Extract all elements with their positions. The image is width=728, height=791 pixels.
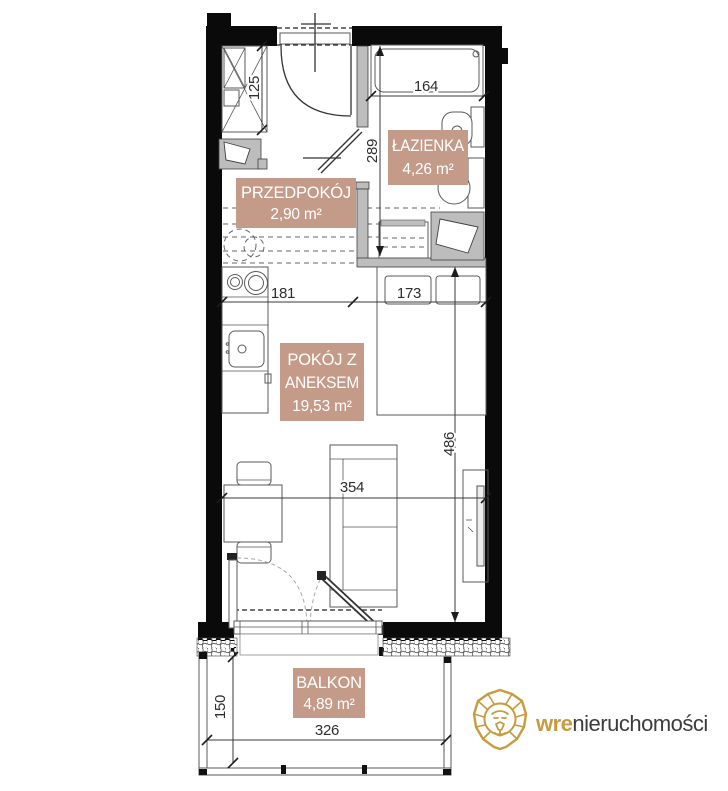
room-name-living-1: POKÓJ Z: [287, 350, 356, 369]
room-name-bathroom: ŁAZIENKA: [392, 137, 464, 155]
floor-plan-page: 181 173 354 486 289 164 125 150: [0, 0, 728, 791]
dimension-balcony-depth: 150: [212, 652, 238, 768]
room-name-living-2: ANEKSEM: [285, 374, 359, 392]
dimension-label-balcony-width: 326: [315, 722, 339, 739]
room-name-balcony: BALKON: [296, 674, 362, 692]
dining-table: [224, 462, 282, 563]
room-area-living: 19,53 m²: [292, 398, 352, 415]
dimension-label-kitchen-run: 181: [271, 285, 295, 302]
stove: [228, 272, 268, 295]
sofa: [330, 445, 397, 607]
tv-panel: [463, 470, 488, 582]
room-name-hallway: PRZEDPOKÓJ: [241, 183, 351, 202]
dimension-label-bathtub: 164: [414, 78, 438, 95]
bed: [377, 267, 486, 415]
washing-machine: [379, 220, 428, 258]
room-label-balcony: BALKON 4,89 m²: [293, 668, 365, 718]
dimension-label-wardrobe: 125: [246, 76, 263, 100]
chair: [237, 462, 271, 485]
dimension-wardrobe: 125: [246, 41, 267, 135]
dimension-label-room-length: 486: [441, 432, 458, 456]
room-area-bathroom: 4,26 m²: [402, 161, 453, 178]
room-area-hallway: 2,90 m²: [270, 206, 321, 223]
dimension-label-room-width: 354: [340, 479, 364, 496]
brand-name: wrenieruchomości: [535, 711, 708, 736]
bathroom-door: [303, 129, 362, 173]
room-label-hallway: PRZEDPOKÓJ 2,90 m²: [236, 178, 356, 228]
brand-logo: wrenieruchomości: [474, 690, 708, 749]
ventilation-shaft-hallway: [219, 139, 267, 169]
brand-name-regular: nieruchomości: [572, 711, 707, 736]
dimension-label-bed: 173: [397, 285, 421, 302]
chair: [237, 542, 271, 563]
lion-icon: [474, 690, 526, 749]
ventilation-shaft-bathroom: [431, 212, 484, 260]
dimension-label-balcony-depth: 150: [212, 695, 229, 719]
kitchen-sink: [226, 331, 264, 367]
floor-plan: 181 173 354 486 289 164 125 150: [0, 0, 728, 791]
room-label-living: POKÓJ Z ANEKSEM 19,53 m²: [280, 343, 364, 421]
dimension-label-hallway-depth: 289: [364, 139, 381, 163]
entrance-door: [277, 13, 352, 116]
dimension-balcony-width: 326: [202, 722, 451, 745]
brand-name-bold: wre: [535, 711, 573, 736]
room-label-bathroom: ŁAZIENKA 4,26 m²: [388, 130, 468, 185]
room-area-balcony: 4,89 m²: [303, 696, 354, 713]
window-band: [231, 621, 384, 656]
